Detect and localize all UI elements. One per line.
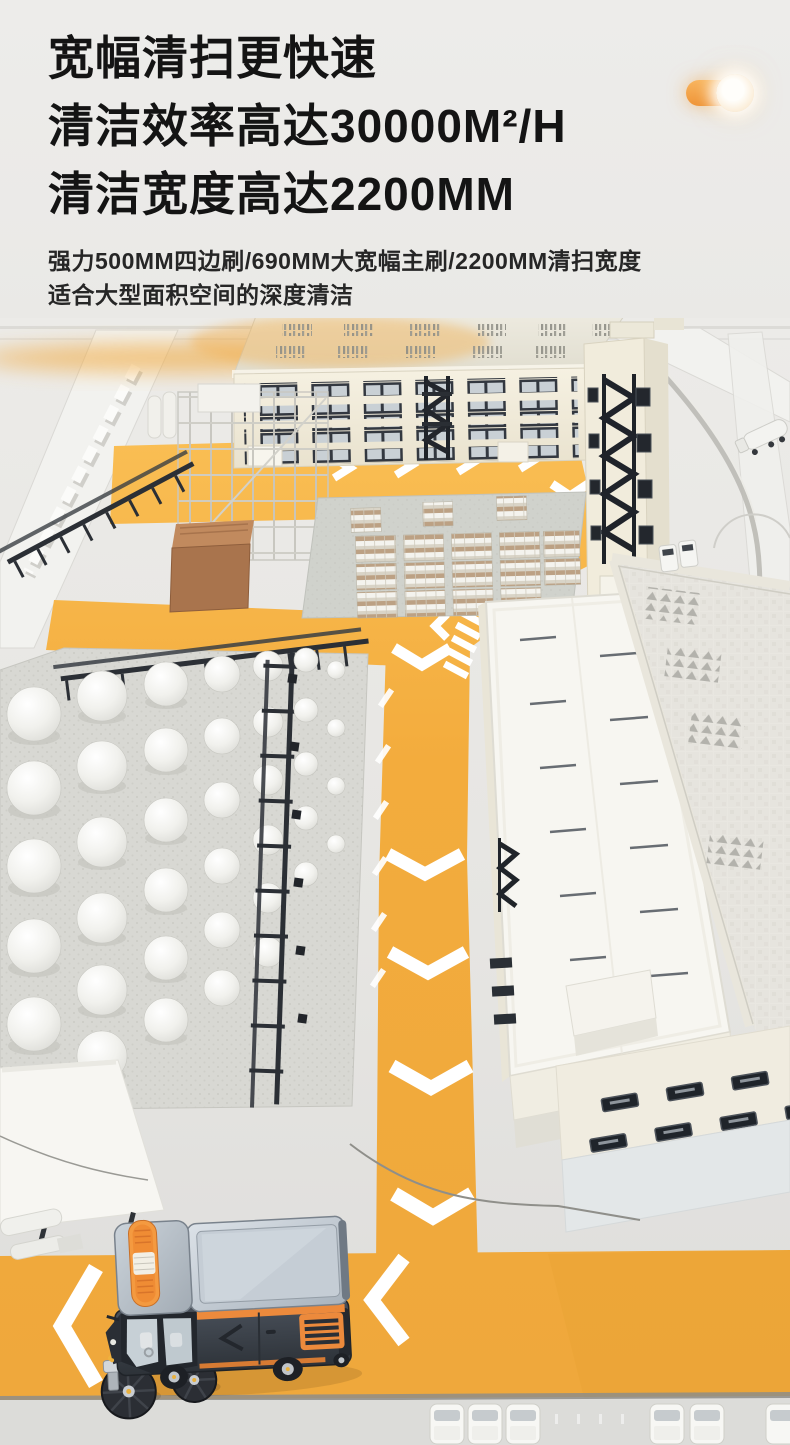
toggle-knob <box>716 74 754 112</box>
scene-illustration <box>0 318 790 1445</box>
hero-header: 宽幅清扫更快速 清洁效率高达30000M²/H 清洁宽度高达2200MM 强力5… <box>0 0 790 318</box>
headline-line-2: 清洁效率高达30000M²/H <box>48 92 790 160</box>
brown-storage-box <box>170 520 254 612</box>
poster: 宽幅清扫更快速 清洁效率高达30000M²/H 清洁宽度高达2200MM 强力5… <box>0 0 790 1445</box>
headline: 宽幅清扫更快速 清洁效率高达30000M²/H 清洁宽度高达2200MM <box>0 0 790 228</box>
headline-line-3: 清洁宽度高达2200MM <box>48 160 790 228</box>
headline-line-1: 宽幅清扫更快速 <box>48 24 790 92</box>
subtitle-line-1: 强力500MM四边刷/690MM大宽幅主刷/2200MM清扫宽度 <box>48 244 790 278</box>
decorative-toggle-graphic <box>686 79 758 107</box>
fire-escape <box>422 376 452 460</box>
subtitle: 强力500MM四边刷/690MM大宽幅主刷/2200MM清扫宽度 适合大型面积空… <box>0 244 790 312</box>
loading-door <box>498 442 528 462</box>
beacon-light-bar <box>128 1220 160 1307</box>
subtitle-line-2: 适合大型面积空间的深度清洁 <box>48 278 790 312</box>
